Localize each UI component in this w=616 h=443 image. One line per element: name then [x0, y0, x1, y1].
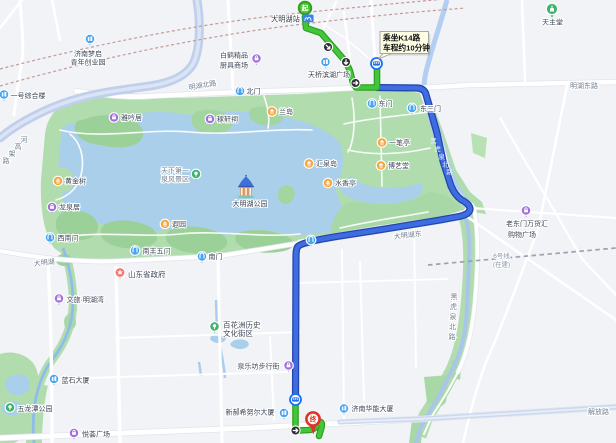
svg-text:大明湖公园: 大明湖公园 — [233, 199, 268, 208]
svg-text:文旅·明湖湾: 文旅·明湖湾 — [67, 295, 104, 304]
svg-text:北: 北 — [449, 323, 456, 331]
svg-text:路: 路 — [3, 156, 10, 165]
svg-text:遐园: 遐园 — [172, 221, 186, 229]
svg-text:泉: 泉 — [450, 312, 457, 321]
svg-text:虎: 虎 — [434, 144, 441, 153]
svg-text:购物广场: 购物广场 — [508, 230, 536, 239]
svg-text:明湖东路: 明湖东路 — [570, 81, 598, 90]
svg-text:高: 高 — [15, 142, 22, 151]
svg-text:南丰五门: 南丰五门 — [143, 247, 171, 256]
svg-text:雅吟居: 雅吟居 — [121, 113, 142, 122]
svg-text:龙泉居: 龙泉居 — [59, 203, 80, 212]
svg-text:兰岛: 兰岛 — [279, 107, 293, 116]
svg-text:一号综合楼: 一号综合楼 — [11, 91, 46, 100]
svg-text:新郝希努尔大厦: 新郝希努尔大厦 — [226, 408, 275, 417]
svg-text:黑: 黑 — [430, 137, 437, 145]
svg-text:东三门: 东三门 — [420, 104, 441, 113]
svg-text:文化街区: 文化街区 — [223, 328, 253, 338]
svg-text:稼轩祠: 稼轩祠 — [217, 115, 238, 124]
svg-text:厨具商场: 厨具商场 — [220, 61, 248, 70]
svg-text:黄金树: 黄金树 — [65, 177, 86, 186]
svg-text:蓝石大厦: 蓝石大厦 — [62, 376, 90, 385]
svg-text:架: 架 — [9, 150, 16, 158]
svg-text:水香亭: 水香亭 — [335, 179, 356, 188]
svg-text:百花洲历史: 百花洲历史 — [223, 320, 261, 330]
svg-text:车程约10分钟: 车程约10分钟 — [383, 42, 430, 52]
svg-text:起: 起 — [301, 4, 310, 13]
svg-text:博艺堂: 博艺堂 — [388, 161, 409, 170]
svg-text:黑: 黑 — [451, 293, 458, 301]
svg-text:泉风景区: 泉风景区 — [161, 175, 189, 184]
svg-text:路: 路 — [449, 332, 456, 341]
svg-text:路: 路 — [446, 167, 453, 176]
svg-text:北: 北 — [442, 161, 449, 169]
svg-text:汇泉岛: 汇泉岛 — [316, 159, 337, 168]
svg-text:6号线: 6号线 — [493, 251, 510, 260]
svg-text:一笔亭: 一笔亭 — [389, 138, 410, 147]
svg-text:西南门: 西南门 — [58, 234, 79, 243]
svg-text:东门: 东门 — [379, 99, 393, 108]
svg-text:北门: 北门 — [247, 87, 261, 96]
svg-text:终: 终 — [310, 415, 317, 424]
svg-text:济南梦启: 济南梦启 — [74, 49, 102, 58]
svg-text:解放路: 解放路 — [588, 407, 609, 416]
svg-text:天主堂: 天主堂 — [542, 18, 563, 27]
svg-text:大明湖站: 大明湖站 — [271, 15, 300, 24]
svg-text:泉乐坊步行街: 泉乐坊步行街 — [238, 362, 280, 371]
svg-text:白鹤精品: 白鹤精品 — [220, 51, 248, 60]
svg-text:青年创业园: 青年创业园 — [71, 58, 106, 67]
svg-text:济南华能大厦: 济南华能大厦 — [352, 404, 394, 413]
svg-text:乘坐K14路: 乘坐K14路 — [382, 32, 420, 42]
svg-text:(在建): (在建) — [493, 260, 510, 269]
svg-text:泉: 泉 — [438, 152, 445, 161]
svg-text:悦荟广场: 悦荟广场 — [82, 430, 110, 439]
svg-text:虎: 虎 — [450, 302, 457, 311]
svg-text:老东门万货汇: 老东门万货汇 — [506, 219, 548, 228]
svg-text:天桥滨湖广场: 天桥滨湖广场 — [308, 70, 350, 79]
svg-text:天下第一: 天下第一 — [161, 166, 189, 175]
svg-text:南门: 南门 — [209, 252, 223, 261]
svg-text:山东省政府: 山东省政府 — [128, 269, 166, 279]
svg-text:五龙潭公园: 五龙潭公园 — [18, 404, 53, 413]
svg-text:河: 河 — [21, 136, 28, 144]
